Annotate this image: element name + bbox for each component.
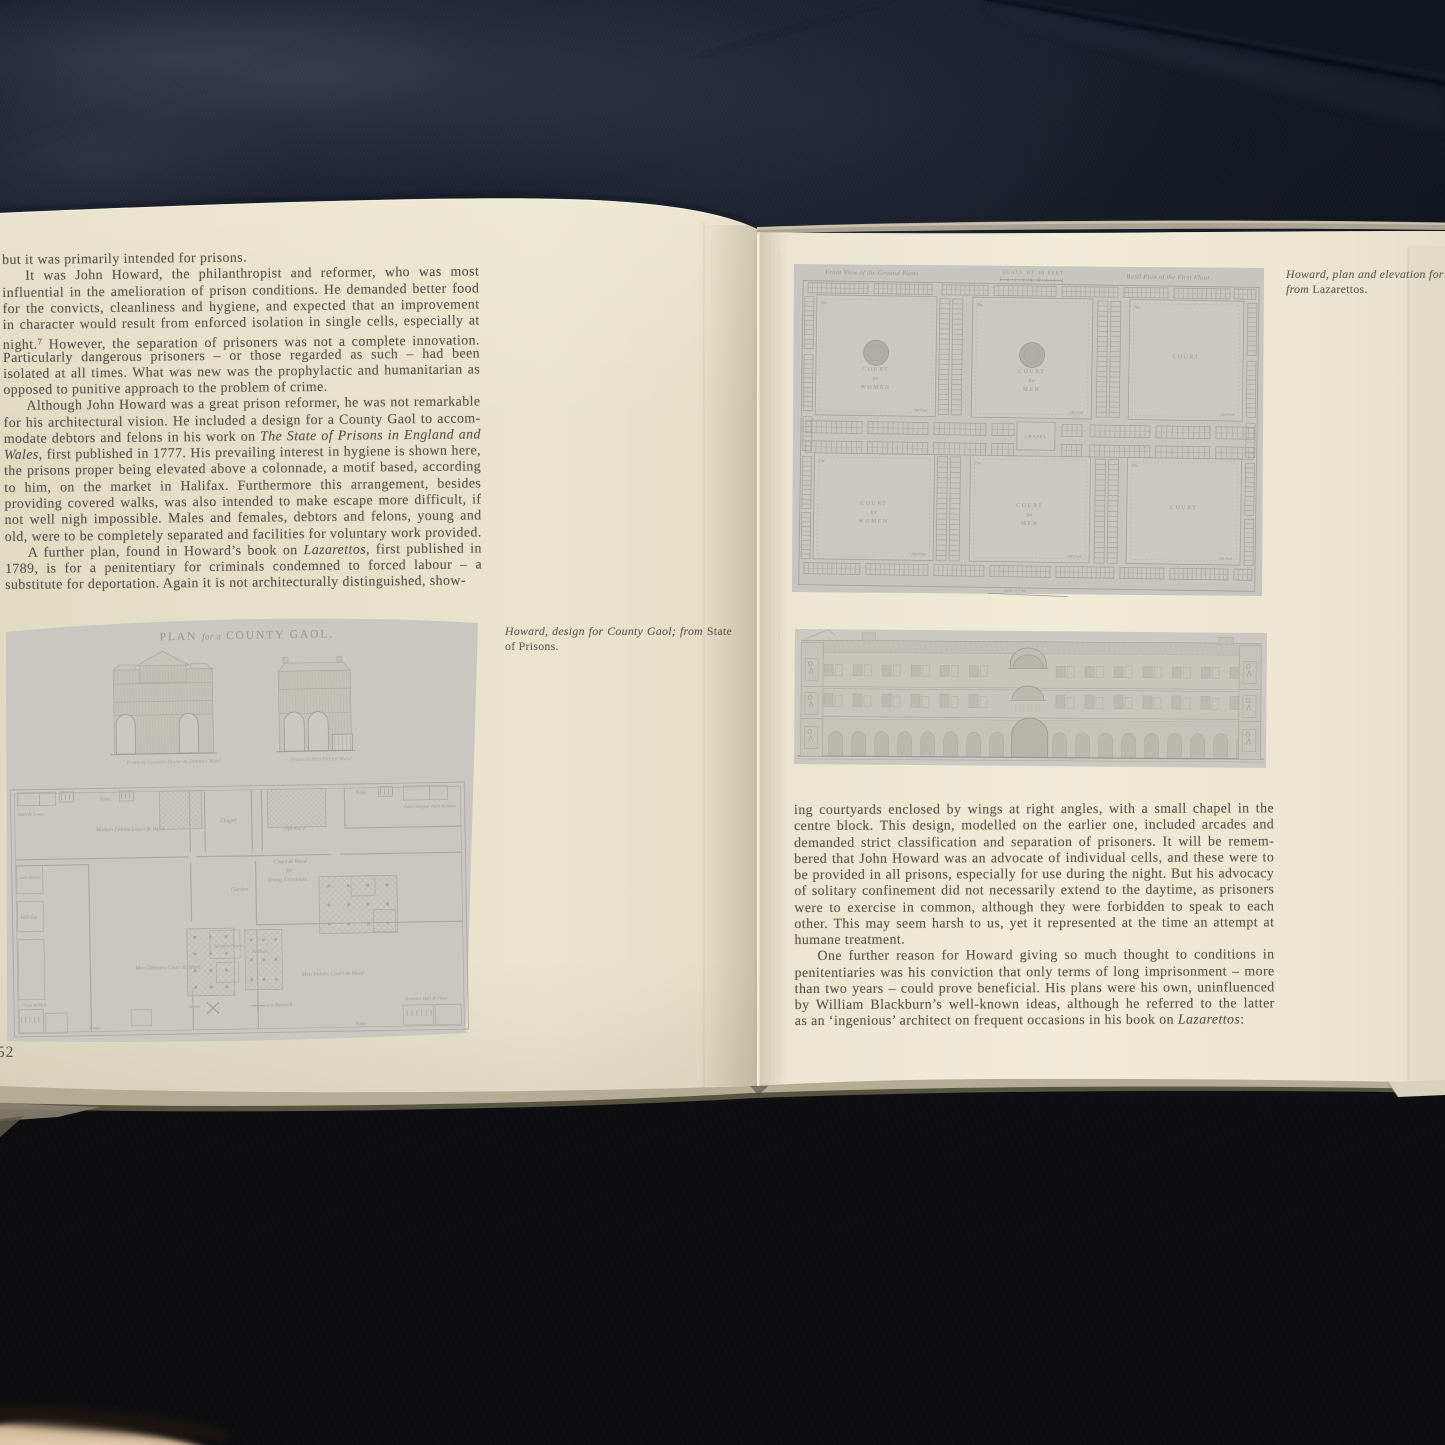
svg-text:Front of Men Felons Ward: Front of Men Felons Ward (290, 755, 352, 763)
svg-text:Sessions Hall & Floor: Sessions Hall & Floor (405, 996, 448, 1002)
svg-text:for: for (871, 511, 877, 516)
svg-text:Bath & Sewer: Bath & Sewer (18, 812, 45, 817)
svg-text:Garden: Garden (231, 887, 249, 893)
svg-text:Well Sup: Well Sup (20, 916, 37, 921)
svg-text:The: The (821, 300, 827, 305)
svg-text:The: The (977, 302, 983, 307)
svg-text:Gat House: Gat House (20, 875, 42, 880)
svg-text:COURT: COURT (1172, 354, 1199, 360)
svg-text:Oven & Still: Oven & Still (22, 1003, 47, 1008)
svg-text:for: for (1027, 513, 1033, 518)
svg-text:COURT: COURT (1170, 505, 1197, 511)
svg-text:for: for (873, 377, 879, 382)
svg-text:240 Feet: 240 Feet (1067, 554, 1082, 559)
svg-text:240 Feet: 240 Feet (913, 407, 928, 412)
svg-text:Front View of the Ground Plans: Front View of the Ground Plans (824, 269, 918, 277)
svg-text:The: The (818, 458, 824, 463)
svg-text:Men Felons Court & Ward: Men Felons Court & Ward (300, 971, 363, 978)
svg-text:The: The (974, 460, 980, 465)
svg-text:for: for (286, 867, 294, 874)
svg-text:Young Criminals: Young Criminals (268, 877, 308, 884)
svg-text:240 Feet: 240 Feet (1069, 410, 1084, 415)
svg-text:Court & Ward: Court & Ward (274, 859, 307, 866)
svg-text:Women Felons Court & Ward: Women Felons Court & Ward (96, 826, 165, 833)
svg-text:CHAPEL: CHAPEL (1025, 434, 1048, 439)
svg-text:Scale of Feet: Scale of Feet (1004, 588, 1027, 593)
svg-text:for: for (1029, 379, 1035, 384)
svg-text:Kitchen: Kitchen (251, 950, 268, 955)
svg-text:COURT: COURT (862, 367, 889, 373)
svg-text:MEN: MEN (1021, 521, 1039, 527)
svg-text:COURT: COURT (860, 501, 887, 507)
svg-text:The: The (1131, 463, 1137, 468)
svg-text:Court Keeper Bath & Store: Court Keeper Bath & Store (404, 804, 458, 810)
svg-text:WOMEN: WOMEN (860, 384, 890, 390)
svg-text:240 Feet: 240 Feet (1220, 412, 1235, 417)
svg-text:Basil Plan of the First Floor: Basil Plan of the First Floor (1126, 273, 1210, 281)
svg-text:Pump: Pump (87, 1026, 100, 1031)
svg-text:Pump: Pump (354, 1022, 367, 1027)
svg-text:Sewer: Sewer (189, 1005, 201, 1010)
svg-text:Keepers House: Keepers House (213, 944, 244, 950)
svg-text:Men Debtors Court & Ward: Men Debtors Court & Ward (134, 965, 200, 972)
svg-text:Chapel: Chapel (220, 818, 237, 824)
svg-text:WOMEN: WOMEN (858, 518, 888, 524)
svg-text:SCALE OF 40 FEET: SCALE OF 40 FEET (1002, 271, 1064, 277)
svg-text:The: The (1134, 305, 1140, 310)
svg-text:240 Feet: 240 Feet (1218, 556, 1233, 561)
svg-text:new Borewell: new Borewell (266, 1003, 293, 1008)
svg-text:Pump: Pump (354, 791, 367, 796)
svg-text:Infirmary: Infirmary (282, 825, 306, 832)
svg-text:COURT: COURT (1016, 503, 1043, 509)
svg-text:MEN: MEN (1023, 387, 1041, 393)
svg-text:Pump: Pump (98, 797, 111, 802)
svg-text:COURT: COURT (1018, 369, 1045, 375)
svg-text:240 Feet: 240 Feet (911, 551, 926, 556)
